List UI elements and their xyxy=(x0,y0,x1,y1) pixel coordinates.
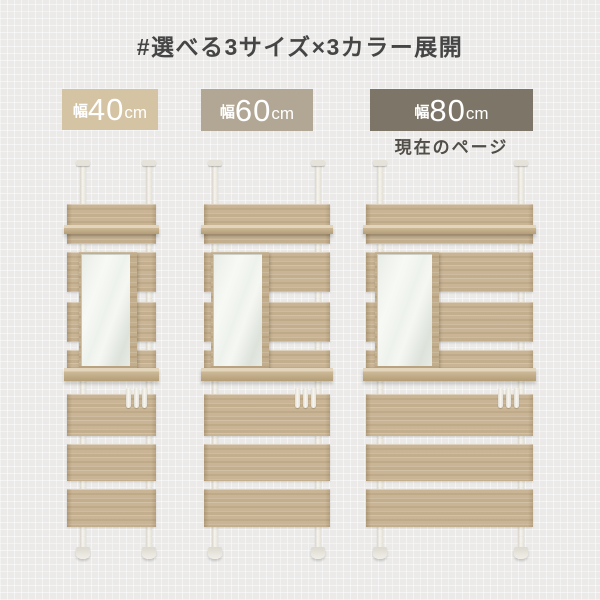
unit-40cm-pole-foot-left xyxy=(76,547,90,559)
unit-60cm-mid-shelf xyxy=(201,368,333,381)
unit-80cm-hook-3 xyxy=(514,388,519,408)
unit-60cm-pole-foot-right xyxy=(311,547,325,559)
unit-40cm-mirror-glass xyxy=(81,254,130,366)
unit-60cm-pole-foot-left xyxy=(208,547,222,559)
unit-40cm-top-panel xyxy=(67,204,156,244)
unit-40cm-hook-3 xyxy=(142,388,147,408)
unit-40cm-slat-4 xyxy=(67,444,156,481)
unit-40cm-mirror-frame xyxy=(79,252,137,372)
promo-image: #選べる3サイズ×3カラー展開 幅 40 cm 幅 60 cm 幅 80 cm … xyxy=(0,0,600,600)
unit-40cm-hook-1 xyxy=(126,388,131,408)
unit-60cm-hook-1 xyxy=(295,388,300,408)
unit-60cm-hook-3 xyxy=(311,388,316,408)
unit-80cm-top-panel xyxy=(366,204,533,244)
unit-60cm-slat-4 xyxy=(204,444,330,481)
unit-60cm-top-shelf xyxy=(201,225,333,234)
unit-40cm-pole-foot-right xyxy=(142,547,156,559)
unit-40cm-hook-2 xyxy=(134,388,139,408)
unit-60cm-hook-2 xyxy=(303,388,308,408)
unit-80cm-hook-1 xyxy=(498,388,503,408)
unit-80cm-slat-5 xyxy=(366,489,533,527)
unit-40cm-pole-cap-left xyxy=(76,160,90,166)
unit-40cm-slat-5 xyxy=(67,489,156,527)
unit-40cm-pole-cap-right xyxy=(142,160,156,166)
unit-80cm-pole-foot-left xyxy=(373,547,387,559)
unit-60cm-slat-5 xyxy=(204,489,330,527)
unit-60cm-mirror-glass xyxy=(213,254,262,366)
unit-60cm-pole-cap-right xyxy=(311,160,325,166)
unit-80cm-slat-4 xyxy=(366,444,533,481)
unit-60cm-top-panel xyxy=(204,204,330,244)
unit-80cm-hook-2 xyxy=(506,388,511,408)
unit-80cm-pole-cap-right xyxy=(514,160,528,166)
product-lineup-illustration xyxy=(0,0,600,600)
unit-80cm-mirror-frame xyxy=(375,252,439,372)
unit-80cm-mirror-glass xyxy=(377,254,432,366)
unit-40cm-top-shelf xyxy=(64,225,159,234)
unit-80cm-mid-shelf xyxy=(363,368,536,381)
unit-80cm-top-shelf xyxy=(363,225,536,234)
unit-80cm-pole-foot-right xyxy=(514,547,528,559)
unit-60cm-mirror-frame xyxy=(211,252,269,372)
unit-80cm-pole-cap-left xyxy=(373,160,387,166)
unit-60cm-pole-cap-left xyxy=(208,160,222,166)
unit-40cm-mid-shelf xyxy=(64,368,159,381)
